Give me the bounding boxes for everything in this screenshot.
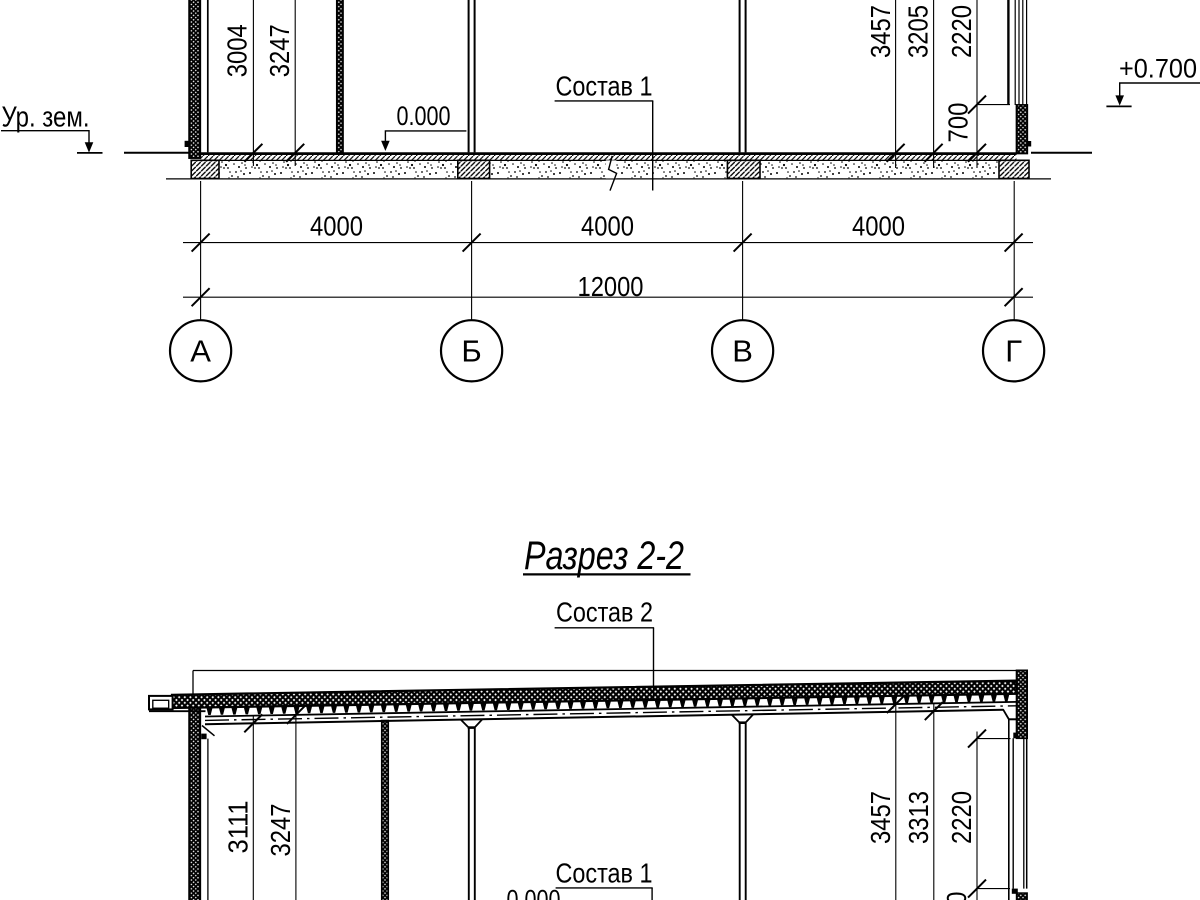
svg-text:4000: 4000 xyxy=(852,211,905,242)
svg-text:3457: 3457 xyxy=(865,5,896,58)
svg-text:3457: 3457 xyxy=(865,791,896,844)
svg-text:2220: 2220 xyxy=(946,5,977,58)
svg-text:+0.700: +0.700 xyxy=(1119,53,1197,83)
svg-text:700: 700 xyxy=(943,103,974,143)
svg-text:3247: 3247 xyxy=(265,804,296,857)
svg-text:Состав 2: Состав 2 xyxy=(556,597,653,628)
svg-text:Г: Г xyxy=(1005,334,1022,369)
svg-text:В: В xyxy=(732,334,753,369)
svg-text:0.000: 0.000 xyxy=(397,101,451,131)
svg-text:3111: 3111 xyxy=(223,801,254,854)
svg-text:700: 700 xyxy=(941,892,972,900)
svg-text:А: А xyxy=(190,334,211,369)
svg-text:4000: 4000 xyxy=(581,211,634,242)
svg-text:Состав 1: Состав 1 xyxy=(556,71,653,102)
svg-text:Состав 1: Состав 1 xyxy=(556,858,653,889)
svg-text:0.000: 0.000 xyxy=(507,884,561,900)
svg-text:2220: 2220 xyxy=(946,791,977,844)
svg-text:12000: 12000 xyxy=(578,271,644,302)
svg-text:Б: Б xyxy=(461,334,481,369)
svg-text:3247: 3247 xyxy=(264,24,295,77)
svg-text:3313: 3313 xyxy=(903,791,934,844)
svg-text:3205: 3205 xyxy=(903,5,934,58)
svg-text:3004: 3004 xyxy=(222,24,253,77)
svg-text:4000: 4000 xyxy=(310,211,363,242)
svg-text:Ур. зем.: Ур. зем. xyxy=(2,102,90,134)
svg-text:Разрез 2-2: Разрез 2-2 xyxy=(524,534,684,578)
